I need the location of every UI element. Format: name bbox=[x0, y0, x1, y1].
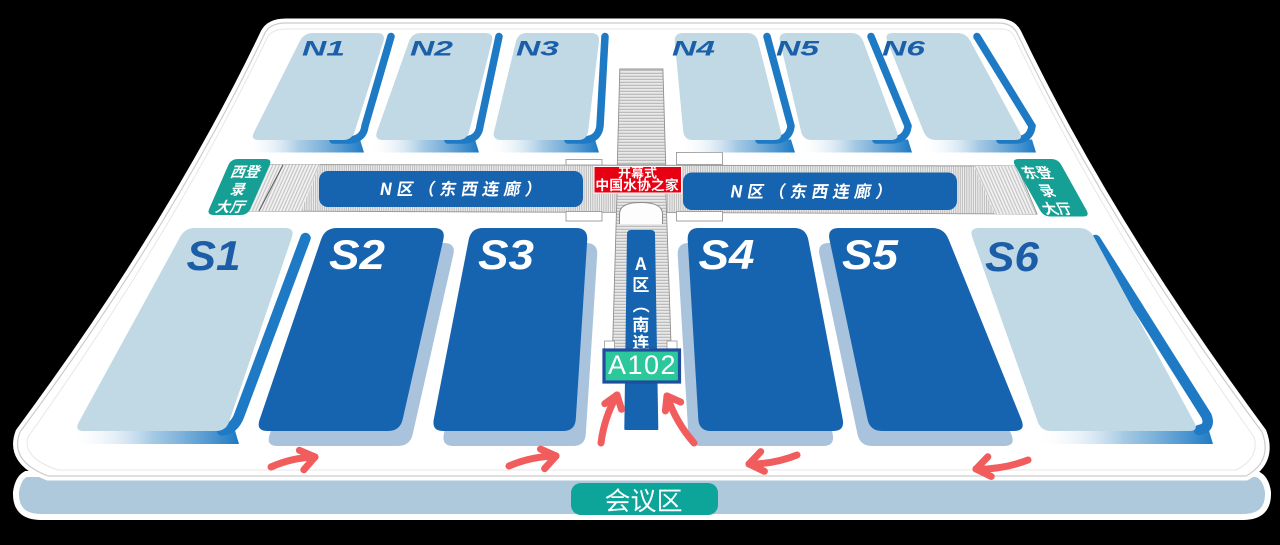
svg-text:N4: N4 bbox=[672, 37, 715, 61]
svg-text:S2: S2 bbox=[329, 231, 385, 278]
svg-text:N3: N3 bbox=[516, 37, 559, 61]
svg-text:N6: N6 bbox=[882, 37, 927, 61]
svg-text:S6: S6 bbox=[985, 233, 1040, 280]
svg-text:N2: N2 bbox=[410, 37, 453, 61]
svg-text:S3: S3 bbox=[478, 231, 534, 278]
svg-text:S5: S5 bbox=[842, 231, 899, 278]
svg-text:A102: A102 bbox=[608, 350, 677, 380]
svg-text:S4: S4 bbox=[699, 231, 755, 278]
svg-text:N5: N5 bbox=[776, 37, 821, 61]
svg-text:S1: S1 bbox=[187, 232, 241, 279]
svg-text:N1: N1 bbox=[302, 37, 345, 61]
